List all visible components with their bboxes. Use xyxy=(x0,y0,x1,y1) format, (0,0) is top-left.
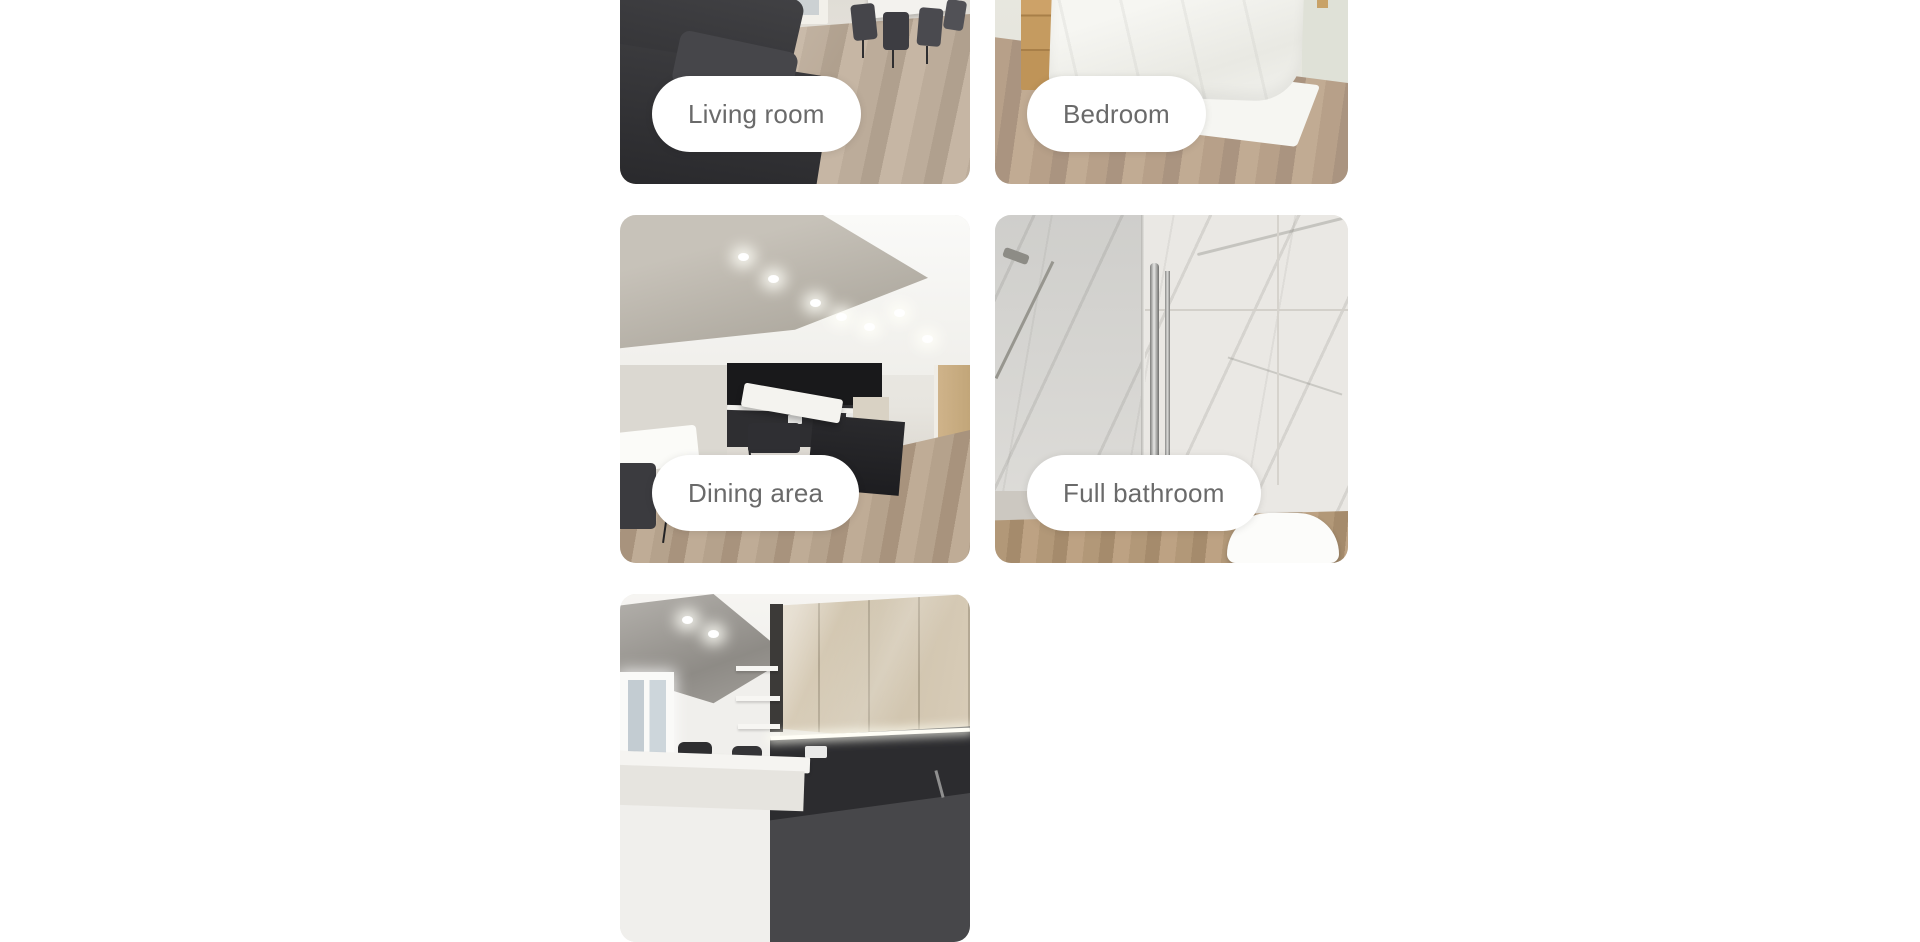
ceiling-light xyxy=(708,630,719,638)
ceiling-light xyxy=(810,299,821,307)
ceiling-light xyxy=(836,313,847,321)
chair xyxy=(748,423,800,453)
chair xyxy=(916,7,943,47)
ceiling-light xyxy=(864,323,875,331)
photo-card-bedroom[interactable]: Bedroom xyxy=(995,0,1348,184)
chair-leg xyxy=(892,50,894,68)
room-label-pill-bedroom[interactable]: Bedroom xyxy=(1027,76,1206,152)
wood-post xyxy=(1317,0,1328,8)
photo-card-living-room[interactable]: Living room xyxy=(620,0,970,184)
ceiling-light xyxy=(922,335,933,343)
upper-cabinets xyxy=(770,594,970,746)
outlet xyxy=(805,746,827,758)
chair xyxy=(620,463,656,529)
shelf xyxy=(738,724,780,729)
tile-seam xyxy=(1277,215,1279,485)
shelf xyxy=(736,696,780,701)
ceiling-light xyxy=(768,275,779,283)
ceiling-light xyxy=(738,253,749,261)
tile-seam xyxy=(1145,309,1348,311)
photo-card-full-bathroom[interactable]: Full bathroom xyxy=(995,215,1348,563)
photo-card-kitchen[interactable] xyxy=(620,594,970,942)
photo-card-dining-area[interactable]: Dining area xyxy=(620,215,970,563)
chair-leg xyxy=(862,40,864,58)
shower-chrome-bar xyxy=(1165,271,1170,459)
shower-chrome-bar xyxy=(1150,263,1159,463)
room-label-pill-full-bathroom[interactable]: Full bathroom xyxy=(1027,455,1261,531)
ceiling-light xyxy=(682,616,693,624)
chair-leg xyxy=(926,46,928,64)
bar-counter-front xyxy=(620,765,805,812)
room-label-pill-dining-area[interactable]: Dining area xyxy=(652,455,859,531)
room-label-pill-living-room[interactable]: Living room xyxy=(652,76,861,152)
chair xyxy=(850,3,878,41)
shelf xyxy=(736,666,778,671)
chair xyxy=(883,12,909,50)
ceiling-light xyxy=(894,309,905,317)
kitchen-photo xyxy=(620,594,970,942)
